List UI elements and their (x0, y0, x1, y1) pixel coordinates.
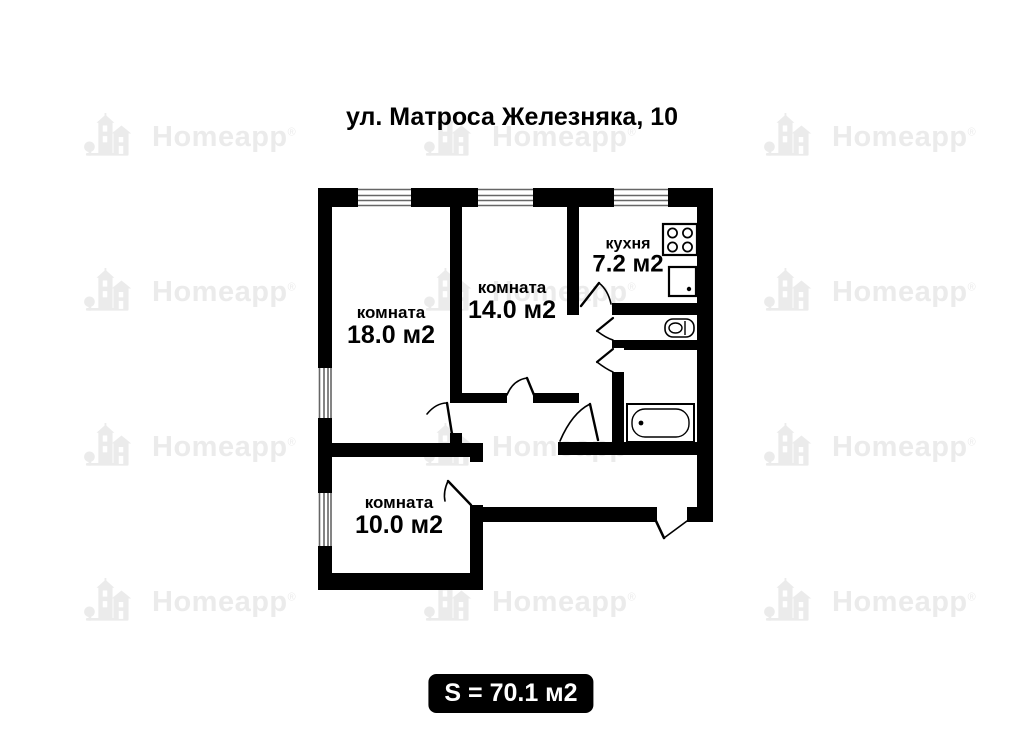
room-name: комната (355, 494, 443, 512)
entry-door-icon (656, 521, 687, 538)
window-icon (478, 188, 533, 207)
door-kitchen-icon (581, 283, 611, 306)
stove-icon (663, 224, 697, 255)
bathtub-icon (627, 404, 694, 442)
room-name: комната (468, 279, 556, 297)
room-label-18: комната 18.0 м2 (347, 304, 435, 348)
window-icon (318, 368, 332, 418)
room-name: комната (347, 304, 435, 322)
page-title: ул. Матроса Железняка, 10 (346, 103, 678, 132)
room-label-10: комната 10.0 м2 (355, 494, 443, 538)
sink-icon (669, 267, 696, 296)
door-wc-icon (597, 318, 613, 340)
room-label-kitchen: кухня 7.2 м2 (592, 236, 663, 277)
window-icon (318, 493, 332, 546)
door-hallway-icon (560, 404, 598, 441)
door-room10-icon (444, 481, 471, 505)
room-label-14: комната 14.0 м2 (468, 279, 556, 323)
room-area: 10.0 м2 (355, 512, 443, 538)
window-icon (614, 188, 668, 207)
room-area: 18.0 м2 (347, 322, 435, 348)
room-area: 14.0 м2 (468, 297, 556, 323)
door-bathroom-icon (597, 349, 613, 372)
total-area-badge: S = 70.1 м2 (428, 674, 593, 713)
toilet-icon (665, 319, 694, 337)
door-room14-icon (507, 378, 534, 395)
floorplan-page: Homeapp® Homeapp® Homeapp® Homeapp® Home… (0, 0, 1024, 731)
window-icon (358, 188, 411, 207)
room-area: 7.2 м2 (592, 253, 663, 277)
door-room18-icon (427, 403, 452, 434)
